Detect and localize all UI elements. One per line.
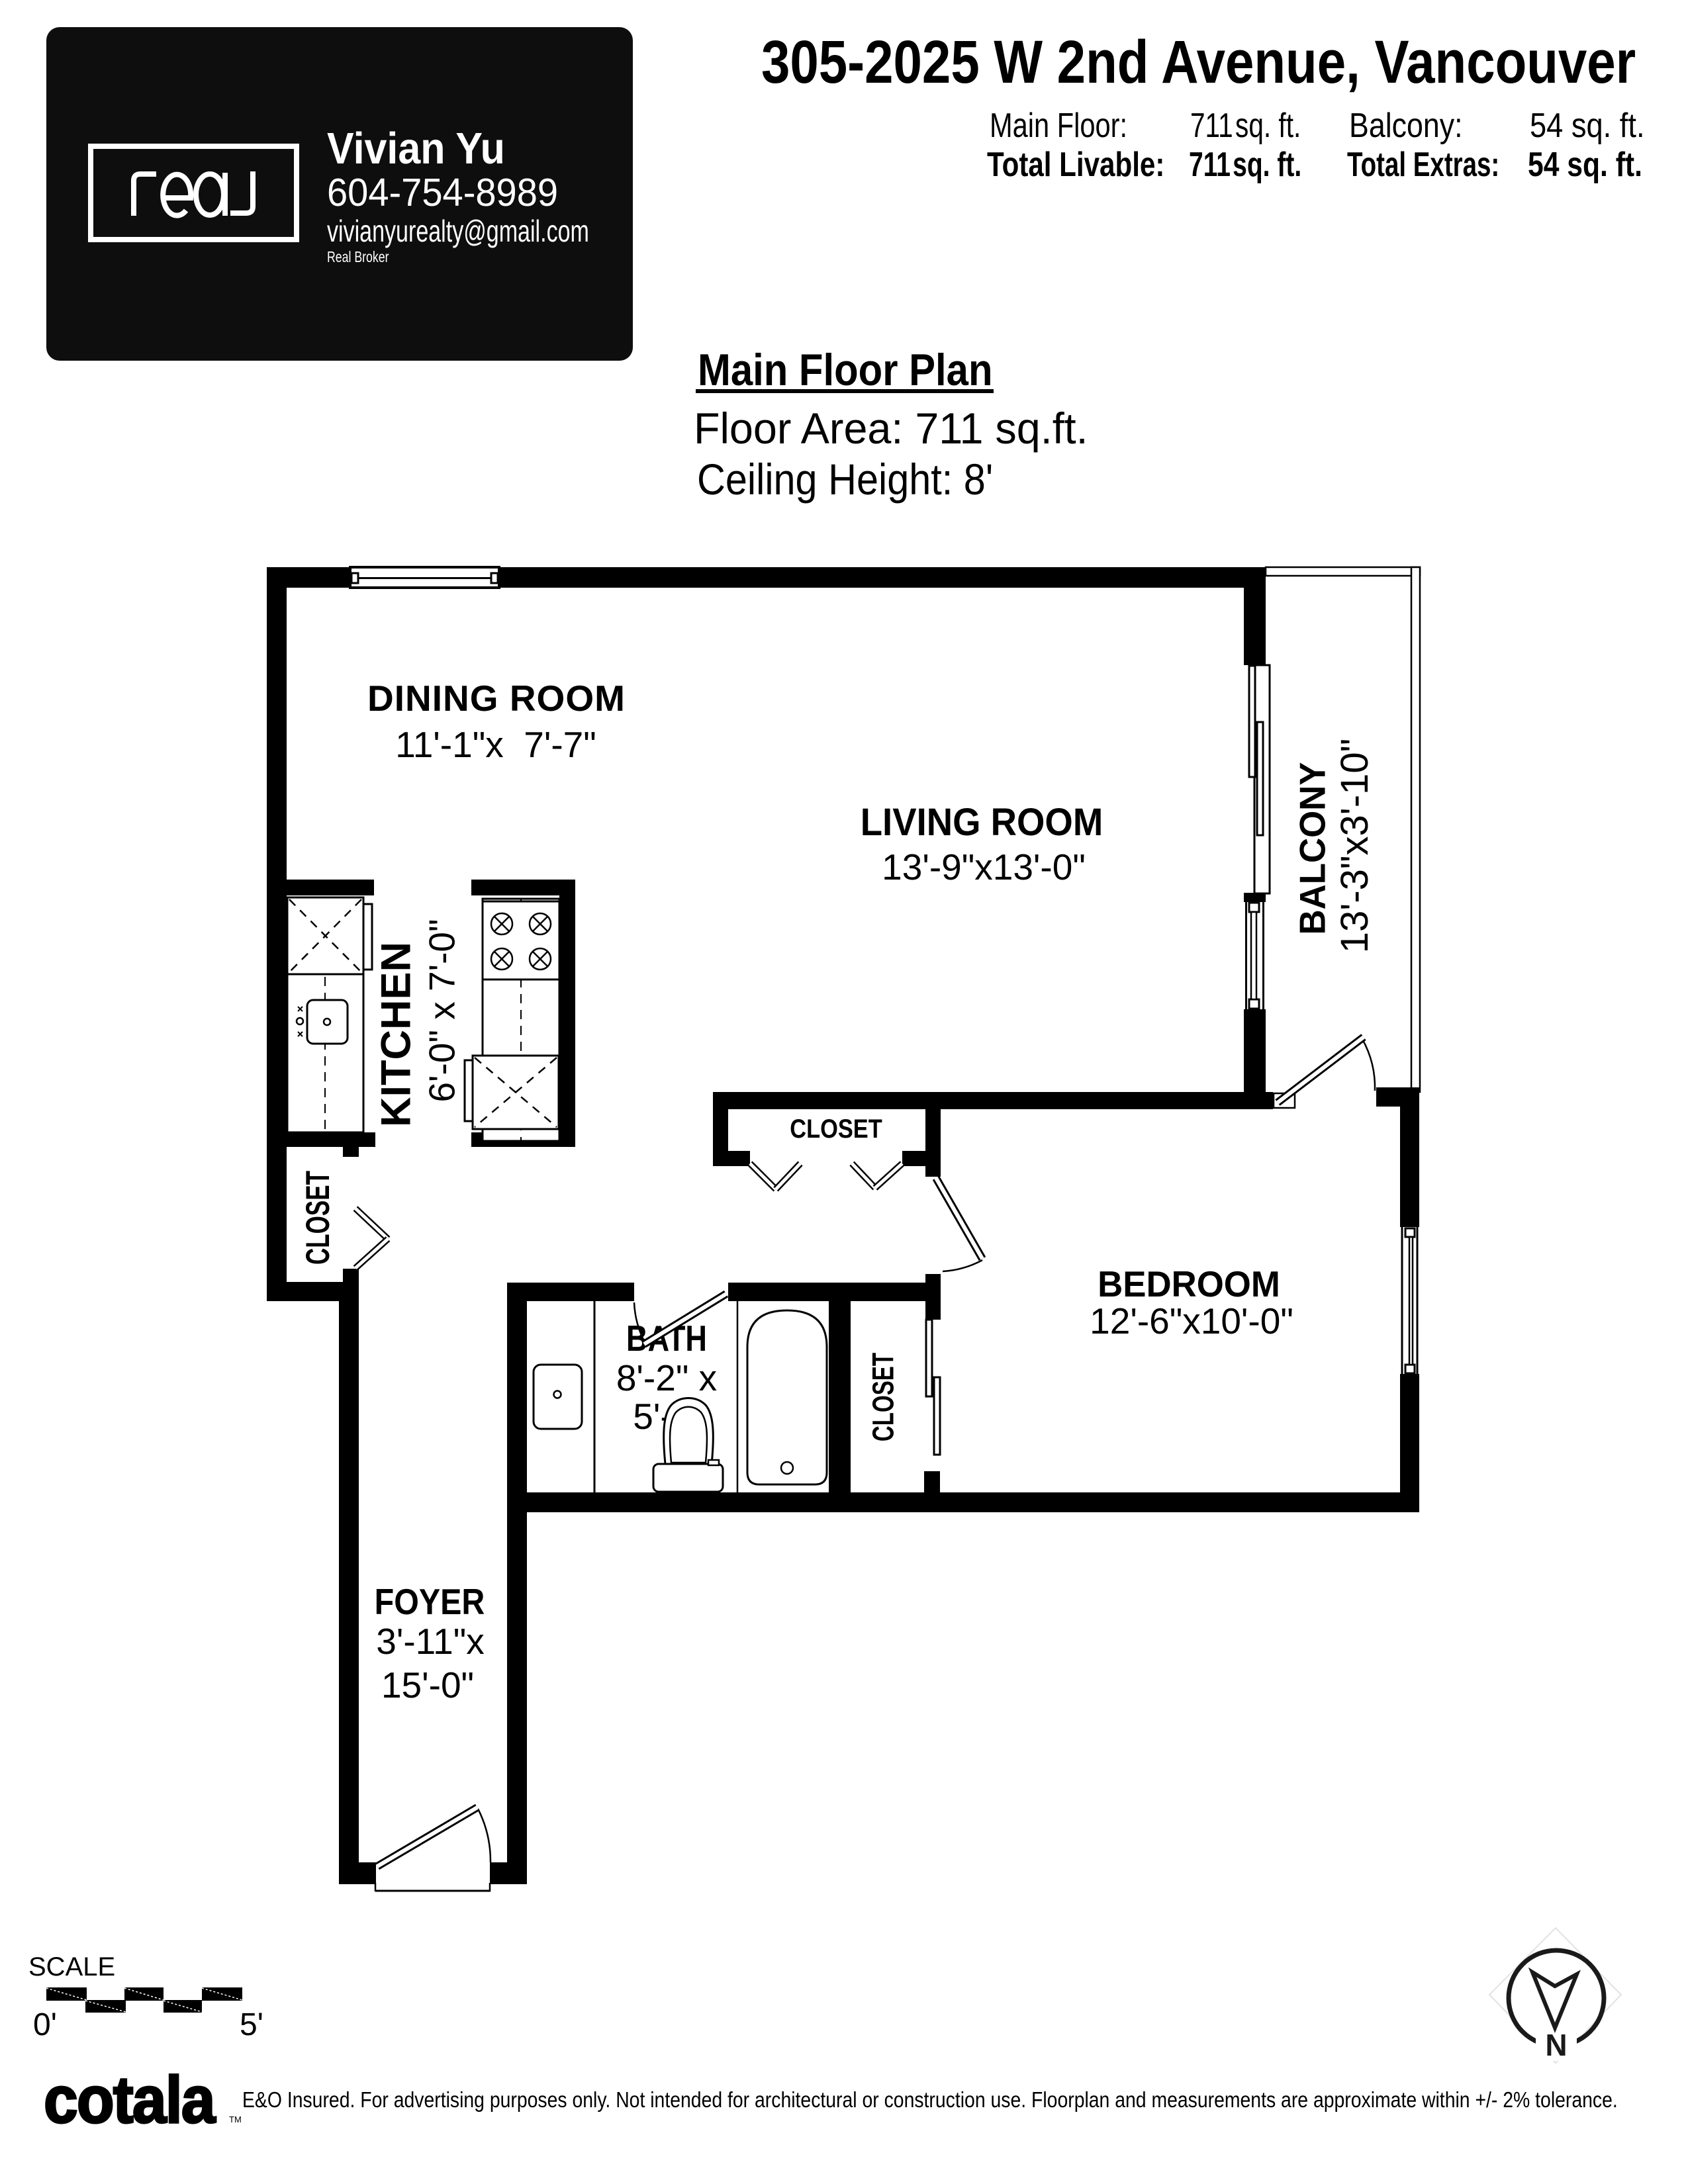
svg-text:N: N (1545, 2028, 1567, 2062)
